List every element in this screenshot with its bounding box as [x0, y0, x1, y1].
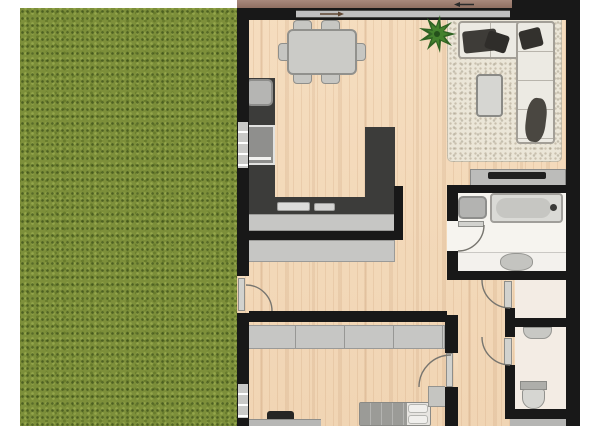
wc-door-leaf	[504, 338, 512, 365]
wall-corridor-south	[237, 311, 447, 322]
kitchen-island	[243, 214, 400, 231]
coffee-table	[476, 74, 503, 117]
bathtub	[490, 193, 563, 223]
shower	[458, 196, 487, 219]
cutoff-room-below-wc	[510, 419, 566, 426]
bathtub-faucet	[550, 204, 557, 211]
kitchen-cooktop	[314, 203, 335, 211]
oven	[245, 125, 275, 165]
kitchen-sink	[277, 202, 310, 211]
bed-pillow	[408, 415, 428, 424]
toilet-bowl	[522, 389, 545, 409]
bedroom-door-leaf	[446, 353, 453, 387]
wall-rooms-west-b	[505, 365, 515, 409]
wall-kitchen-stub	[394, 186, 403, 236]
bed-pillow	[408, 404, 428, 413]
dining-table	[287, 29, 357, 75]
floor-plan-canvas	[0, 0, 600, 426]
bathroom-door-opening	[447, 221, 458, 251]
sliding-window-top	[296, 10, 510, 18]
bed-duvet	[360, 403, 407, 425]
desk	[243, 419, 321, 426]
vanity-sink	[500, 253, 533, 271]
wall-kitchen-south	[237, 231, 403, 240]
kitchen-counter-right	[365, 127, 395, 205]
wall-bedroom-east-upper	[445, 315, 458, 353]
bathtub-basin	[496, 198, 551, 218]
bed	[359, 402, 431, 426]
small-room-floor	[515, 280, 566, 318]
hand-basin	[523, 327, 552, 339]
fridge-unit	[246, 79, 273, 106]
wall-left	[237, 8, 249, 426]
kitchen-window	[238, 122, 248, 168]
small-room-door-leaf	[504, 281, 512, 308]
garden-grass	[20, 8, 237, 426]
wall-right	[566, 8, 580, 426]
wall-bath-north	[447, 185, 566, 193]
wall-wc-south	[505, 409, 580, 419]
wall-small-room-south	[505, 318, 580, 327]
sideboard	[243, 240, 395, 262]
oven-handle	[249, 157, 271, 160]
wall-bath-south	[447, 271, 566, 280]
bathroom-door-leaf	[458, 221, 484, 227]
tv	[488, 172, 546, 179]
wall-bath-west-upper	[447, 193, 458, 221]
garden-door-leaf	[238, 278, 245, 311]
wardrobe	[246, 325, 445, 349]
bedroom-window	[238, 384, 248, 418]
wall-bedroom-east-lower	[445, 387, 458, 426]
